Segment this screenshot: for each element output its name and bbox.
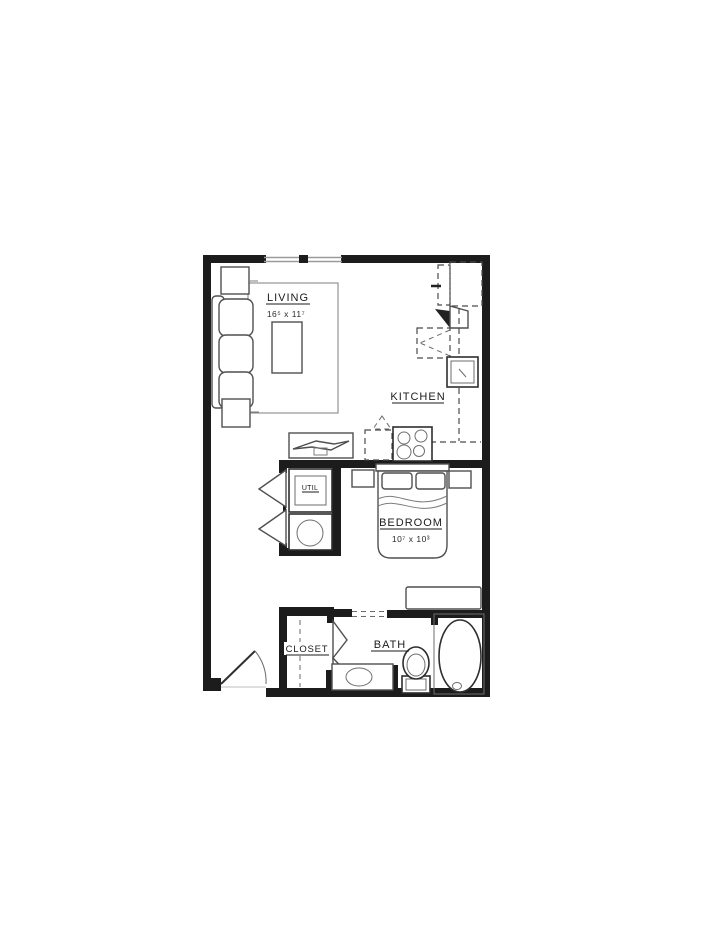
sofa-cushion — [219, 299, 253, 336]
window-mullion — [299, 255, 308, 263]
floor-plan-drawing: LIVING 16⁵ x 11⁷ KITCHEN — [0, 0, 720, 932]
window-top — [264, 255, 342, 263]
utility-double-doors — [259, 470, 286, 546]
vanity — [332, 664, 393, 690]
utility-closet: UTIL — [289, 469, 332, 550]
wall-top-left — [203, 255, 266, 263]
coffee-table — [272, 322, 302, 373]
nightstand-surface — [352, 470, 374, 487]
kitchen-label: KITCHEN — [390, 391, 445, 403]
refrigerator-body — [450, 262, 482, 306]
living-label-group: LIVING 16⁵ x 11⁷ — [266, 292, 310, 319]
util-label: UTIL — [302, 485, 318, 492]
range — [365, 416, 432, 461]
floor-plan-page: LIVING 16⁵ x 11⁷ KITCHEN — [0, 0, 720, 932]
util-door-leaf — [259, 470, 286, 507]
sofa — [212, 296, 253, 408]
wall-closet-top — [279, 607, 334, 616]
kitchen-wall-oven — [447, 357, 478, 387]
sofa-cushion — [219, 335, 253, 373]
range-hood — [373, 416, 391, 429]
bedroom-dims: 10⁷ x 10³ — [392, 534, 430, 544]
pillow-left — [382, 473, 412, 489]
entry-door-leaf — [221, 651, 255, 684]
corner-wedge — [435, 309, 450, 328]
closet: CLOSET — [284, 620, 330, 687]
toilet — [402, 647, 430, 693]
refrigerator — [431, 262, 482, 306]
wall-util-right — [332, 460, 341, 556]
coffee-table-top — [272, 322, 302, 373]
cabinet-left-of-range — [365, 430, 392, 460]
util-door-leaf — [259, 510, 286, 546]
water-heater-compartment — [289, 514, 332, 550]
end-table-top-surface — [221, 267, 249, 294]
nightstand-right — [449, 471, 471, 488]
living-label: LIVING — [267, 292, 309, 304]
bath-label: BATH — [374, 639, 407, 651]
tub-basin — [439, 620, 481, 692]
kitchen-corner-cabinet — [417, 306, 468, 358]
wall-bath-top-left — [334, 609, 352, 617]
end-table-top — [221, 267, 258, 294]
lazy-susan-line — [420, 343, 450, 356]
dresser-top — [406, 587, 481, 609]
entry-door — [221, 651, 266, 687]
nightstand-left — [352, 470, 374, 487]
tv-console — [289, 433, 353, 458]
dresser — [406, 587, 481, 609]
wall-bottom-left-stub — [203, 678, 221, 691]
wall-right — [482, 255, 490, 697]
bifold-leaf — [333, 621, 347, 658]
lazy-susan-line — [420, 330, 450, 343]
kitchen-label-group: KITCHEN — [390, 391, 445, 403]
pillow-right — [416, 473, 445, 489]
lazy-susan-cabinet — [417, 328, 450, 358]
headboard — [376, 464, 449, 471]
bathtub — [434, 614, 484, 694]
entry-door-swing-arc — [255, 651, 266, 684]
wall-top-right — [341, 255, 490, 263]
living-dims: 16⁵ x 11⁷ — [267, 309, 305, 319]
closet-label: CLOSET — [286, 644, 329, 655]
bath-label-group: BATH — [371, 639, 409, 651]
nightstand-surface — [449, 471, 471, 488]
wall-left — [203, 255, 211, 685]
bedroom-label: BEDROOM — [379, 517, 443, 529]
end-table-bottom-surface — [222, 399, 250, 427]
